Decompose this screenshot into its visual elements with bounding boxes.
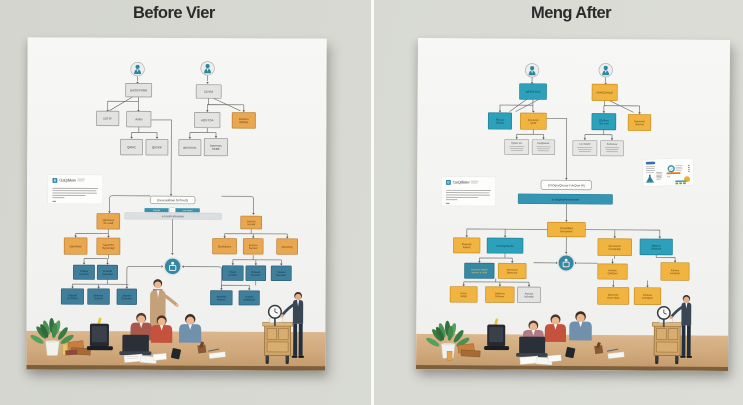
svg-text:wvlvQvwr: wvlvQvwr	[641, 296, 652, 300]
svg-text:fvrvvwvlvt: fvrvvwvlvt	[560, 229, 572, 233]
svg-text:GvAelrtjv: GvAelrtjv	[121, 296, 132, 300]
svg-text:lvlavst: lvlavst	[462, 245, 470, 249]
svg-text:QIKSIK: QIKSIK	[151, 145, 161, 149]
svg-text:Wwws: Wwws	[496, 121, 504, 125]
svg-text:wvwv-Qvjs: wvwv-Qvjs	[607, 296, 620, 300]
svg-text:BASGYNNN: BASGYNNN	[130, 88, 147, 92]
svg-text:ANIN: ANIN	[135, 117, 142, 121]
svg-text:EISTF: EISTF	[103, 116, 112, 120]
svg-text:fvfvlvwr: fvfvlvwr	[495, 294, 504, 298]
svg-text:Rypeniagl: Rypeniagl	[102, 245, 114, 249]
svg-text:Qawrkasp: Qawrkasp	[69, 244, 82, 248]
svg-text:fljvwvwvr: fljvwvwvr	[506, 271, 517, 275]
svg-text:WNS1YNX: WNS1YNX	[525, 90, 540, 94]
svg-text:lvDvwlp: lvDvwlp	[524, 294, 534, 298]
svg-text:fvLfvwvw: fvLfvwvw	[606, 142, 617, 146]
svg-text:⋯: ⋯	[171, 209, 174, 212]
svg-text:fvyvwvl: fvyvwvl	[249, 246, 258, 250]
svg-text:Lo.ifVfpcv: Lo.ifVfpcv	[66, 296, 78, 300]
svg-text:fvuQwvws: fvuQwvws	[537, 141, 550, 145]
svg-text:B: B	[53, 178, 56, 182]
svg-text:Lw vwwvr: Lw vwwvr	[579, 142, 590, 146]
svg-text:VANSCVNLE: VANSCVNLE	[596, 91, 613, 95]
svg-text:CuaQsfvlvaw: CuaQsfvlvaw	[452, 179, 470, 184]
svg-text:Svvhvqwlvwbs: Svvhvqwlvwbs	[496, 244, 514, 248]
svg-text:sfwsfw: sfwsfw	[152, 209, 159, 212]
svg-text:rvvvval: rvvvval	[247, 222, 256, 226]
svg-text:QvlQvwl: QvlQvwl	[607, 271, 617, 275]
svg-text:svv wvwv: svv wvwv	[182, 209, 193, 212]
svg-text:fvWlvvvl: fvWlvvvl	[651, 247, 661, 251]
svg-text:a vwqsvwvwvwvms: a vwqsvwvwvwvms	[551, 197, 579, 201]
svg-text:frwlvwv: frwlvwv	[217, 297, 226, 301]
svg-text:[ThOqvvQvcvw FvhQvw W]: [ThOqvvQvcvw FvhQvw W]	[547, 183, 584, 187]
svg-text:fucvwlatl: fucvwlatl	[102, 271, 112, 275]
svg-text:WE: WE	[667, 176, 671, 178]
svg-text:IGGSH: IGGSH	[239, 120, 248, 124]
svg-text:BGYCKSs: BGYCKSs	[183, 145, 197, 149]
svg-text:EEVM: EEVM	[204, 89, 213, 93]
svg-text:Qamvous: Qamvous	[102, 218, 114, 222]
svg-text:fro suall: fro suall	[103, 221, 113, 225]
svg-text:a kosimamowasr: a kosimamowasr	[161, 214, 184, 218]
svg-text:Qw vws: Qw vws	[599, 121, 609, 125]
svg-text:Sauv706: Sauv706	[103, 242, 114, 246]
svg-text:CuaQsfvlvaw: CuaQsfvlvaw	[59, 177, 77, 182]
svg-text:tvcwvws: tvcwvws	[79, 271, 89, 275]
svg-text:EKBE: EKBE	[212, 146, 220, 150]
svg-text:vfwvvw: vfwvvw	[635, 122, 644, 126]
svg-text:fvvwqvlwp: fvvwqvlwp	[608, 247, 621, 251]
svg-text:QvW: QvW	[530, 121, 536, 125]
svg-text:wvwlvb: wvwlvb	[228, 272, 237, 276]
svg-text:fpciwivr: fpciwivr	[94, 296, 103, 300]
svg-text:AGSTOA: AGSTOA	[201, 118, 213, 122]
svg-text:[InvocaddioaI GirSnvG]: [InvocaddioaI GirSnvG]	[157, 198, 188, 202]
svg-text:fvvwvwr: fvvwvwr	[251, 272, 260, 276]
svg-text:WQvl: WQvl	[460, 294, 467, 298]
svg-text:fwvvwlvr: fwvvwlvr	[276, 272, 286, 276]
svg-text:swvQvbr: swvQvbr	[669, 271, 679, 275]
svg-text:QitlNC: QitlNC	[127, 145, 137, 149]
svg-text:fjvtvw ws: fjvtvw ws	[511, 141, 522, 145]
svg-text:wvwvlv b vlvW: wvwvlv b vlvW	[471, 271, 487, 274]
svg-text:wvWfvwvr: wvWfvwvr	[243, 297, 255, 301]
svg-text:Qvwlvkams: Qvwlvkams	[217, 244, 231, 248]
svg-text:Qvwvlvpy: Qvwvlvpy	[281, 244, 293, 248]
svg-text:B: B	[447, 180, 450, 184]
